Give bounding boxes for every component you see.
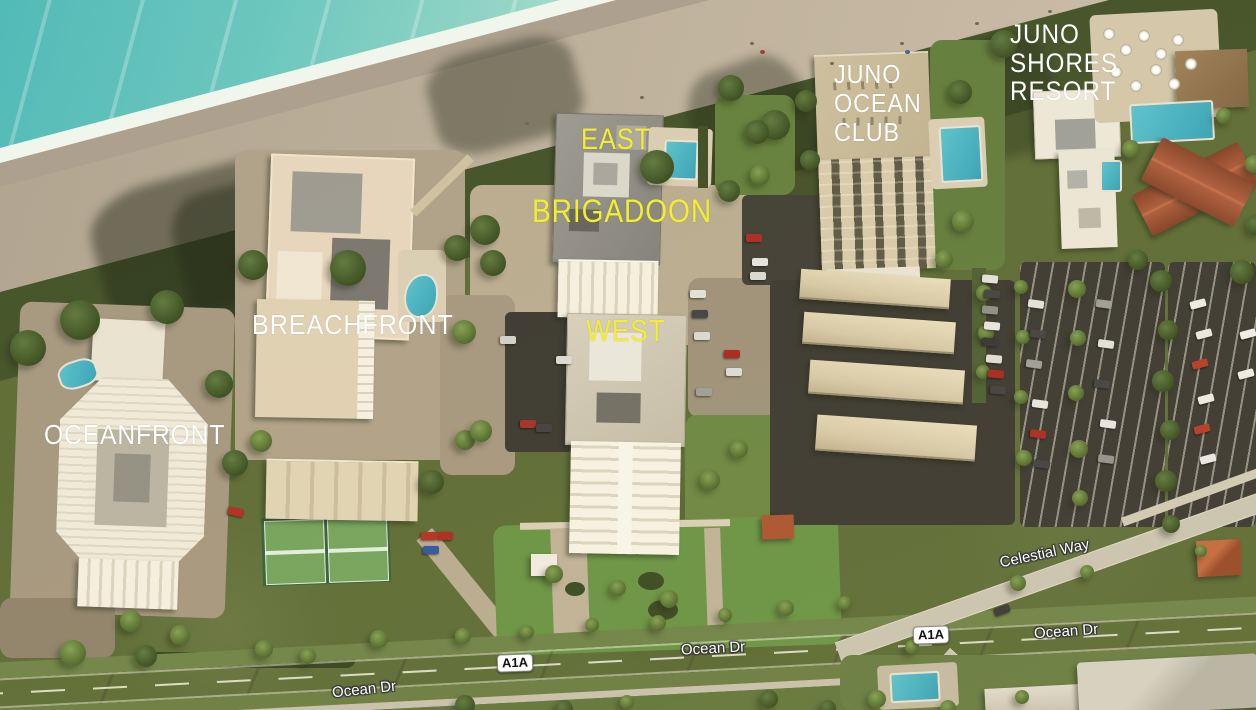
oceanfront-tower — [55, 375, 210, 580]
palm-tree — [1245, 155, 1256, 173]
palm-tree — [520, 625, 534, 639]
tree — [222, 450, 248, 476]
parked-car — [982, 274, 999, 283]
tree — [1162, 515, 1180, 533]
palm-tree — [1216, 108, 1232, 124]
resort-roof-patch — [1055, 118, 1096, 149]
parked-car — [227, 506, 244, 517]
palm-tree — [620, 695, 634, 709]
tree — [760, 690, 778, 708]
parked-car — [984, 289, 1001, 298]
brigadoon-east-south-facade — [558, 259, 659, 319]
palm-tree — [610, 580, 626, 596]
parked-car — [986, 354, 1003, 363]
tree — [795, 90, 817, 112]
palm-tree — [470, 420, 492, 442]
palm-tree — [1070, 440, 1088, 458]
palm-tree — [170, 625, 190, 645]
palm-tree — [1014, 390, 1028, 404]
juno-ocean-club-pool — [939, 125, 984, 183]
palm-tree — [1068, 385, 1084, 401]
parked-car — [500, 336, 516, 344]
pool-umbrella — [1120, 44, 1132, 56]
tree — [718, 75, 744, 101]
parked-car — [724, 350, 740, 358]
palm-tree — [60, 640, 86, 666]
tree — [205, 370, 233, 398]
tree — [1158, 320, 1178, 340]
palm-tree — [452, 320, 476, 344]
tree — [330, 250, 366, 286]
facade-floor-lines — [818, 156, 936, 272]
beachgoer — [750, 42, 754, 45]
pool-umbrella — [1172, 34, 1184, 46]
shield-a1a-left: A1A — [497, 653, 534, 672]
tree — [800, 150, 820, 170]
tree — [480, 250, 506, 276]
tree — [718, 180, 740, 202]
parked-car — [752, 258, 768, 266]
label-brigadoon: BRIGADOON — [532, 194, 712, 229]
palm-tree — [545, 565, 563, 583]
garden-bed — [638, 572, 664, 590]
palm-tree — [250, 430, 272, 452]
house-pool — [889, 671, 941, 704]
resort-roof-patch — [1078, 208, 1101, 229]
pool-umbrella — [1185, 58, 1197, 70]
tennis-court — [264, 519, 326, 585]
palm-tree — [650, 615, 666, 631]
pool-umbrella — [1150, 64, 1162, 76]
tree — [948, 80, 972, 104]
palm-tree — [868, 690, 886, 708]
parked-car — [423, 546, 439, 554]
beachgoer — [525, 122, 529, 125]
parked-car — [746, 234, 762, 242]
parked-car — [990, 385, 1007, 394]
oceanfront-north-wing — [90, 318, 165, 384]
palm-tree — [778, 600, 794, 616]
palm-tree — [700, 470, 720, 490]
parked-car — [536, 424, 552, 432]
brigadoon-east-parking — [688, 278, 778, 418]
parked-car — [694, 332, 710, 340]
tree — [1150, 270, 1172, 292]
tree — [1246, 215, 1256, 235]
palm-tree — [1072, 490, 1088, 506]
tree — [10, 330, 46, 366]
east-roof-structure — [593, 163, 618, 186]
tree — [444, 235, 470, 261]
tennis-court — [327, 517, 389, 583]
palm-tree — [1122, 140, 1140, 158]
palm-tree — [940, 700, 956, 710]
beachgoer — [975, 22, 979, 25]
resort-roof-patch — [1067, 170, 1088, 189]
tree — [238, 250, 268, 280]
tree — [455, 695, 475, 710]
beachgoer — [1048, 10, 1052, 13]
pool-umbrella — [1138, 30, 1150, 42]
house-roof-gray — [1077, 653, 1256, 710]
palm-tree — [120, 610, 142, 632]
palm-tree — [455, 628, 471, 644]
parked-car — [421, 532, 437, 540]
label-west: WEST — [586, 314, 666, 348]
parked-car — [690, 290, 706, 298]
palm-tree — [255, 640, 273, 658]
tree — [1230, 260, 1254, 284]
beachgoer — [640, 96, 644, 99]
parked-car — [556, 356, 572, 364]
label-breachfront: BREACHFRONT — [252, 310, 454, 341]
oceanfront-roof-core — [113, 453, 151, 502]
palm-tree — [750, 165, 770, 185]
breachfront-roof-patch — [291, 171, 363, 233]
juno-ocean-club-facade — [818, 156, 936, 272]
brigadoon-west-south-facade — [569, 441, 681, 555]
label-juno-shores-resort: JUNO SHORES RESORT — [1010, 20, 1118, 106]
tree — [470, 215, 500, 245]
palm-tree — [1014, 280, 1028, 294]
pool-umbrella — [1155, 48, 1167, 60]
west-facade-column — [617, 442, 633, 554]
label-oceanfront: OCEANFRONT — [44, 420, 225, 451]
parked-car — [982, 337, 999, 346]
tree — [1155, 470, 1177, 492]
beachgoer — [900, 42, 904, 45]
label-east: EAST — [581, 123, 651, 156]
beach-towel — [760, 50, 765, 54]
palm-tree — [1010, 575, 1026, 591]
oceanfront-south-wing — [77, 558, 179, 609]
parked-car — [726, 368, 742, 376]
parked-car — [696, 388, 712, 396]
east-roof-penthouse — [583, 152, 630, 197]
tree — [1152, 370, 1174, 392]
aerial-map[interactable]: EAST BRIGADOON WEST JUNO OCEAN CLUB JUNO… — [0, 0, 1256, 710]
parked-car — [982, 305, 999, 314]
shield-a1a-right: A1A — [913, 625, 950, 644]
parked-car — [750, 272, 766, 280]
breachfront-townhouse-row — [265, 459, 418, 522]
southwest-driveway — [0, 598, 115, 658]
tree — [135, 645, 157, 667]
pool-umbrella — [1168, 78, 1180, 90]
palm-tree — [718, 608, 732, 622]
beach-towel — [905, 50, 910, 54]
parked-car — [988, 369, 1005, 378]
label-ocean-dr-center: Ocean Dr — [681, 638, 746, 658]
tree — [150, 290, 184, 324]
palm-tree — [1080, 565, 1094, 579]
palm-tree — [730, 440, 748, 458]
pool-umbrella — [1130, 80, 1142, 92]
garden-bed — [565, 582, 585, 596]
parked-car — [437, 532, 453, 540]
parked-car — [692, 310, 708, 318]
palm-tree — [660, 590, 678, 608]
parked-car — [520, 420, 536, 428]
palm-tree — [1068, 280, 1086, 298]
palm-tree — [952, 210, 974, 232]
palm-tree — [370, 630, 388, 648]
tree — [420, 470, 444, 494]
palm-tree — [1016, 450, 1032, 466]
tennis-courts — [261, 514, 391, 586]
tree — [60, 300, 100, 340]
resort-small-pool — [1100, 160, 1122, 192]
palm-tree — [300, 648, 316, 664]
palm-tree — [1070, 330, 1086, 346]
palm-tree — [585, 618, 599, 632]
palm-tree — [1195, 545, 1207, 557]
tree — [1160, 420, 1180, 440]
palm-tree — [1015, 690, 1029, 704]
tree — [1128, 250, 1148, 270]
resort-main-pool — [1129, 100, 1215, 144]
palm-tree — [838, 596, 852, 610]
west-roof-vent — [596, 392, 641, 423]
tree — [820, 700, 836, 710]
tree — [745, 120, 769, 144]
palm-tree — [1016, 330, 1030, 344]
pool-hedge — [698, 126, 708, 188]
palm-tree — [935, 250, 953, 268]
parked-car — [984, 321, 1001, 330]
small-house-roof-orange — [762, 514, 795, 539]
label-juno-ocean-club: JUNO OCEAN CLUB — [834, 60, 922, 147]
